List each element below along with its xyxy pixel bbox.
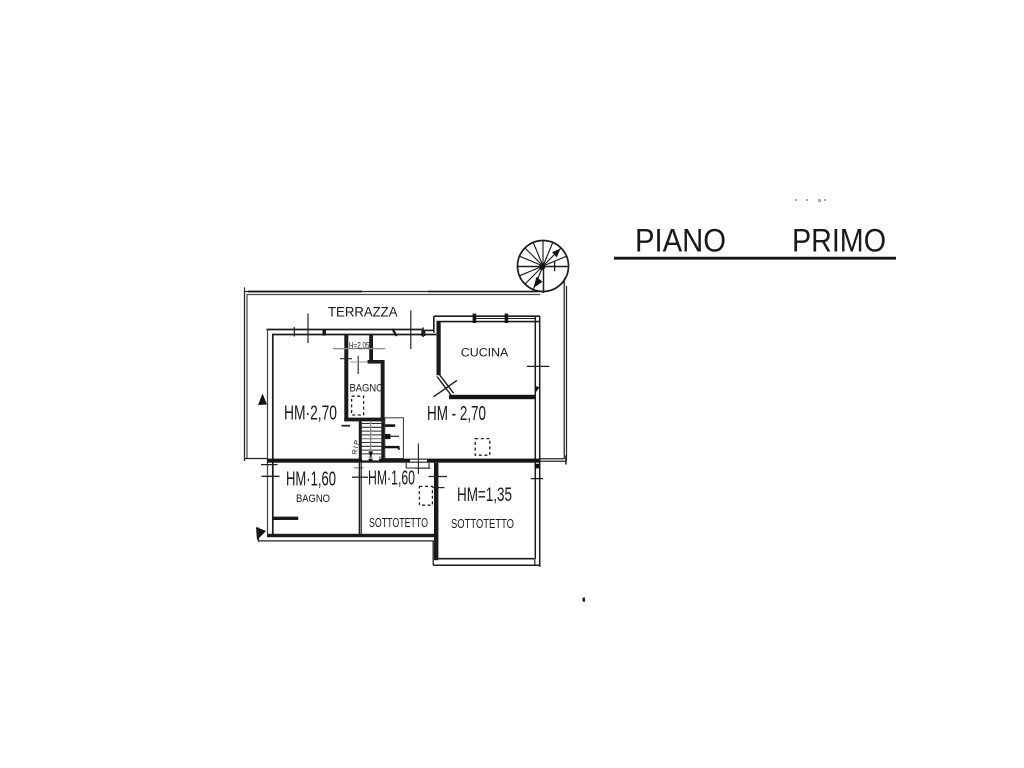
svg-text:CUCINA: CUCINA [461,345,509,359]
svg-text:PIANO: PIANO [635,223,726,259]
svg-text:HM=1,35: HM=1,35 [457,484,512,506]
svg-text:HM·1,60: HM·1,60 [286,469,336,491]
svg-text:SOTTOTETTO: SOTTOTETTO [369,516,428,530]
svg-text:PRIMO: PRIMO [792,223,886,259]
svg-text:BAGNO: BAGNO [296,493,330,505]
svg-text:HM·2,70: HM·2,70 [284,401,337,424]
svg-text:BAGNO: BAGNO [350,383,384,395]
svg-text:TERRAZZA: TERRAZZA [328,305,398,320]
svg-text:SOTTOTETTO: SOTTOTETTO [451,516,514,531]
svg-text:HM - 2,70: HM - 2,70 [427,402,486,425]
svg-text:H=2,05: H=2,05 [349,340,370,350]
svg-text:HM·1,60: HM·1,60 [368,468,415,490]
